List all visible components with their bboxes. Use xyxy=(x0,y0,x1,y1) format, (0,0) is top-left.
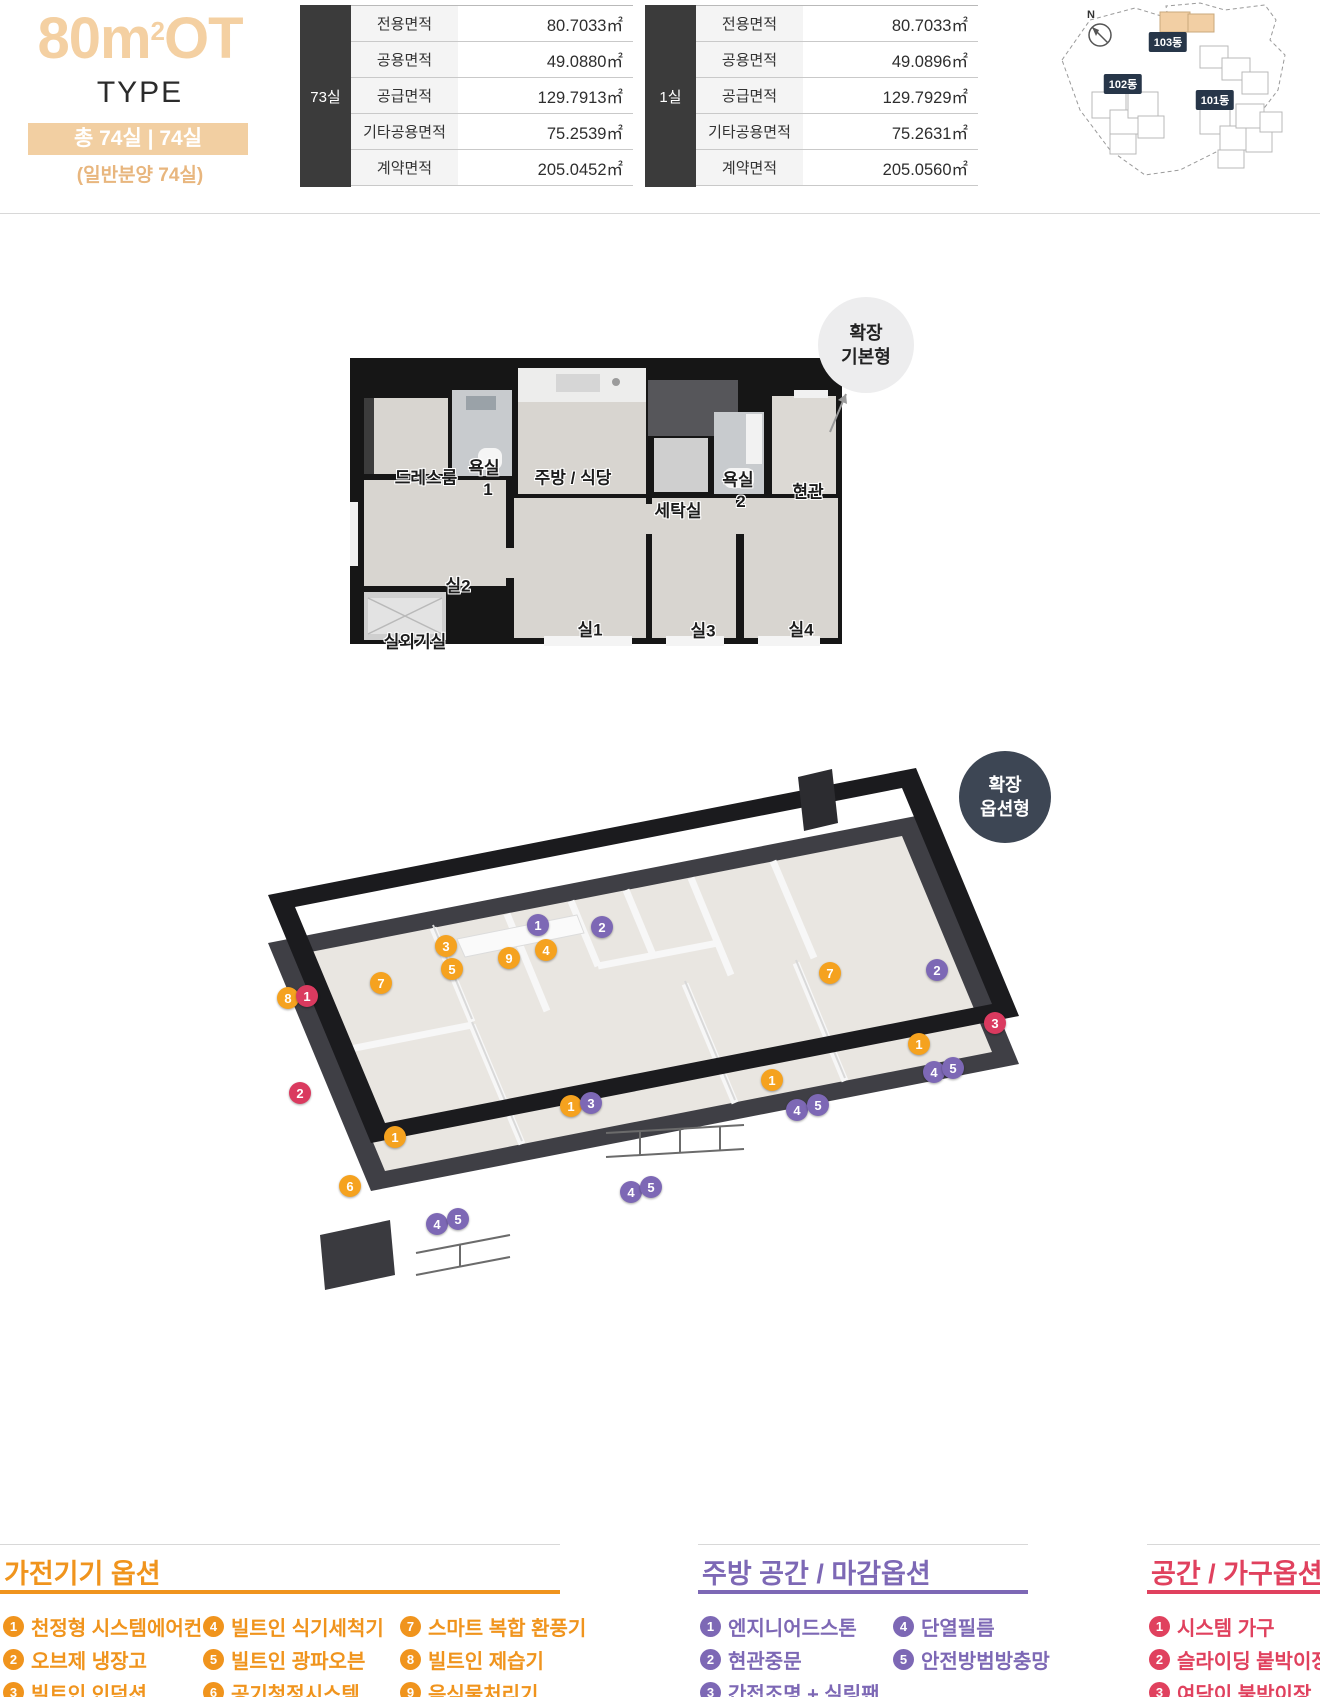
area-row-label: 공용면적 xyxy=(351,42,458,77)
expansion-option-badge: 확장 옵션형 xyxy=(959,751,1051,843)
legend-title: 공간 / 가구옵션 xyxy=(1151,1552,1320,1591)
legend-item-label: 안전방범방충망 xyxy=(921,1645,1050,1674)
area-row-label: 전용면적 xyxy=(351,6,458,41)
area-table-unit: 1실 xyxy=(645,5,696,187)
legend-item-label: 단열필름 xyxy=(921,1612,995,1641)
legend-item-label: 빌트인 인덕션 xyxy=(31,1678,147,1697)
type-label: TYPE xyxy=(18,76,262,110)
area-row-value: 49.0896㎡ xyxy=(803,42,978,77)
option-marker: 5 xyxy=(447,1208,469,1230)
legend-item-number: 2 xyxy=(1149,1649,1170,1670)
legend-item: 6공기청정시스템 xyxy=(203,1678,360,1697)
legend-item-number: 5 xyxy=(203,1649,224,1670)
option-marker: 3 xyxy=(435,935,457,957)
legend-item-number: 7 xyxy=(400,1616,421,1637)
legend-item: 4빌트인 식기세척기 xyxy=(203,1612,384,1641)
section-divider xyxy=(0,213,1320,214)
legend-item: 4단열필름 xyxy=(893,1612,995,1641)
option-marker: 1 xyxy=(761,1069,783,1091)
room-label: 실외기실 xyxy=(384,628,447,653)
legend-item-number: 4 xyxy=(203,1616,224,1637)
legend-item-number: 5 xyxy=(893,1649,914,1670)
area-table-unit: 73실 xyxy=(300,5,351,187)
area-row: 기타공용면적75.2631㎡ xyxy=(696,114,978,150)
page-title: 80m2OT xyxy=(18,10,262,68)
area-row-label: 계약면적 xyxy=(696,150,803,185)
legend-item-label: 빌트인 제습기 xyxy=(428,1645,544,1674)
room-label: 욕실 xyxy=(468,454,499,479)
room-label: 실2 xyxy=(445,572,470,597)
legend-item: 8빌트인 제습기 xyxy=(400,1645,544,1674)
room-label: 2 xyxy=(736,492,745,512)
legend-item-label: 시스템 가구 xyxy=(1177,1612,1275,1641)
area-row-value: 75.2631㎡ xyxy=(803,114,978,149)
legend-item-label: 엔지니어드스톤 xyxy=(728,1612,857,1641)
area-row: 전용면적80.7033㎡ xyxy=(696,6,978,42)
option-marker: 7 xyxy=(370,972,392,994)
legend-underline xyxy=(1147,1590,1320,1594)
option-marker: 9 xyxy=(498,947,520,969)
room-label: 1 xyxy=(483,480,492,500)
legend-item: 3빌트인 인덕션 xyxy=(3,1678,147,1697)
option-marker: 1 xyxy=(384,1126,406,1148)
area-row-value: 205.0452㎡ xyxy=(458,150,633,185)
area-row-label: 공급면적 xyxy=(696,78,803,113)
badge-line1: 확장 xyxy=(849,321,882,345)
title-superscript: 2 xyxy=(151,16,164,46)
area-table-body: 전용면적80.7033㎡공용면적49.0880㎡공급면적129.7913㎡기타공… xyxy=(351,5,633,187)
area-row: 기타공용면적75.2539㎡ xyxy=(351,114,633,150)
floor-plan-2d: 드레스룸욕실1주방 / 식당세탁실욕실2현관실2실1실3실4실외기실 xyxy=(348,352,845,650)
area-row-value: 129.7929㎡ xyxy=(803,78,978,113)
legend-title: 가전기기 옵션 xyxy=(4,1552,161,1591)
room-label: 현관 xyxy=(792,478,823,503)
legend-item: 3간접조명 + 실링팬 xyxy=(700,1678,880,1697)
legend-item-label: 천정형 시스템에어컨 xyxy=(31,1612,202,1641)
legend-item-label: 슬라이딩 붙박이장 xyxy=(1177,1645,1320,1674)
floor-plan-2d-drawing xyxy=(348,352,845,650)
site-map-drawing: N xyxy=(1050,0,1320,185)
legend-item: 2오브제 냉장고 xyxy=(3,1645,147,1674)
building-cluster-101 xyxy=(1200,104,1282,168)
legend-item: 1천정형 시스템에어컨 xyxy=(3,1612,202,1641)
area-row-value: 75.2539㎡ xyxy=(458,114,633,149)
legend-item: 2슬라이딩 붙박이장 xyxy=(1149,1645,1320,1674)
site-map: N 103동102동101동 xyxy=(1050,0,1320,185)
room-label: 주방 / 식당 xyxy=(535,464,612,489)
title-prefix: 80m xyxy=(37,6,150,71)
legend-item: 3여닫이 붙박이장 xyxy=(1149,1678,1311,1697)
room-label: 욕실 xyxy=(722,466,753,491)
legend-topline xyxy=(0,1544,560,1545)
legend-item: 1엔지니어드스톤 xyxy=(700,1612,857,1641)
area-row-label: 기타공용면적 xyxy=(351,114,458,149)
legend-title: 주방 공간 / 마감옵션 xyxy=(702,1552,931,1591)
area-row-value: 49.0880㎡ xyxy=(458,42,633,77)
legend-item-label: 스마트 복합 환풍기 xyxy=(428,1612,586,1641)
building-badge: 102동 xyxy=(1104,74,1142,94)
option-marker: 4 xyxy=(620,1181,642,1203)
area-row: 전용면적80.7033㎡ xyxy=(351,6,633,42)
option-marker: 1 xyxy=(527,914,549,936)
area-row-label: 기타공용면적 xyxy=(696,114,803,149)
area-row-label: 공급면적 xyxy=(351,78,458,113)
area-row-value: 80.7033㎡ xyxy=(803,6,978,41)
general-sale-note: (일반분양 74실) xyxy=(18,160,262,187)
option-marker: 4 xyxy=(426,1213,448,1235)
legend-item: 9음식물처리기 xyxy=(400,1678,538,1697)
room-label: 드레스룸 xyxy=(395,464,458,489)
legend-item: 2현관중문 xyxy=(700,1645,802,1674)
room-label: 실1 xyxy=(577,616,602,641)
area-row-label: 전용면적 xyxy=(696,6,803,41)
legend-item-label: 공기청정시스템 xyxy=(231,1678,360,1697)
compass-n-label: N xyxy=(1087,9,1095,21)
option-marker: 3 xyxy=(984,1012,1006,1034)
option-marker: 4 xyxy=(535,939,557,961)
building-cluster-102 xyxy=(1092,92,1164,154)
legend-item-number: 2 xyxy=(700,1649,721,1670)
option-marker: 5 xyxy=(441,958,463,980)
compass-icon: N xyxy=(1087,9,1111,46)
legend-item: 7스마트 복합 환풍기 xyxy=(400,1612,586,1641)
badge-line2: 옵션형 xyxy=(980,797,1030,821)
legend-item-label: 빌트인 광파오븐 xyxy=(231,1645,365,1674)
floor-plan-3d: 817359412216134545723145145 xyxy=(180,765,1050,1310)
option-marker: 2 xyxy=(591,916,613,938)
option-marker: 1 xyxy=(296,985,318,1007)
area-table-body: 전용면적80.7033㎡공용면적49.0896㎡공급면적129.7929㎡기타공… xyxy=(696,5,978,187)
legend-item-number: 1 xyxy=(700,1616,721,1637)
building-badge: 103동 xyxy=(1149,32,1187,52)
brochure-page: 80m2OT TYPE 총 74실 | 74실 (일반분양 74실) 73실 전… xyxy=(0,0,1320,1697)
legend-item-number: 6 xyxy=(203,1682,224,1697)
area-row: 계약면적205.0452㎡ xyxy=(351,150,633,186)
legend-item-label: 현관중문 xyxy=(728,1645,802,1674)
badge-arrow xyxy=(822,388,856,436)
area-row-value: 205.0560㎡ xyxy=(803,150,978,185)
legend-topline xyxy=(1147,1544,1320,1545)
option-marker: 5 xyxy=(942,1057,964,1079)
area-row: 공급면적129.7929㎡ xyxy=(696,78,978,114)
legend-item-number: 3 xyxy=(3,1682,24,1697)
area-row-value: 80.7033㎡ xyxy=(458,6,633,41)
area-row-value: 129.7913㎡ xyxy=(458,78,633,113)
option-marker: 1 xyxy=(560,1095,582,1117)
legend-underline xyxy=(698,1590,1028,1594)
option-marker: 2 xyxy=(289,1082,311,1104)
room-label: 세탁실 xyxy=(655,497,702,522)
legend-item-number: 2 xyxy=(3,1649,24,1670)
option-marker: 5 xyxy=(807,1094,829,1116)
room-label: 실4 xyxy=(788,616,813,641)
legend-item: 5안전방범방충망 xyxy=(893,1645,1050,1674)
title-suffix: OT xyxy=(164,6,243,71)
area-row-label: 공용면적 xyxy=(696,42,803,77)
option-marker: 3 xyxy=(580,1092,602,1114)
area-table-1: 1실 전용면적80.7033㎡공용면적49.0896㎡공급면적129.7929㎡… xyxy=(645,5,978,187)
area-row: 공용면적49.0896㎡ xyxy=(696,42,978,78)
area-row: 계약면적205.0560㎡ xyxy=(696,150,978,186)
legend-underline xyxy=(0,1590,560,1594)
expansion-basic-badge: 확장 기본형 xyxy=(818,297,914,393)
legend-item-label: 오브제 냉장고 xyxy=(31,1645,147,1674)
badge-line1: 확장 xyxy=(988,773,1021,797)
legend-item: 5빌트인 광파오븐 xyxy=(203,1645,365,1674)
area-table-73: 73실 전용면적80.7033㎡공용면적49.0880㎡공급면적129.7913… xyxy=(300,5,633,187)
legend-item-number: 1 xyxy=(1149,1616,1170,1637)
area-row: 공급면적129.7913㎡ xyxy=(351,78,633,114)
area-row: 공용면적49.0880㎡ xyxy=(351,42,633,78)
highlighted-building xyxy=(1160,12,1214,32)
unit-count-badge: 총 74실 | 74실 xyxy=(28,123,248,155)
legend-item-label: 간접조명 + 실링팬 xyxy=(728,1678,880,1697)
area-row-label: 계약면적 xyxy=(351,150,458,185)
option-marker: 5 xyxy=(640,1176,662,1198)
legend-item-number: 8 xyxy=(400,1649,421,1670)
legend-item-number: 4 xyxy=(893,1616,914,1637)
legend-item-number: 3 xyxy=(700,1682,721,1697)
building-badge: 101동 xyxy=(1196,90,1234,110)
option-marker: 7 xyxy=(819,962,841,984)
legend-item-number: 9 xyxy=(400,1682,421,1697)
legend-item-label: 음식물처리기 xyxy=(428,1678,538,1697)
badge-line2: 기본형 xyxy=(841,345,891,369)
legend-item-label: 빌트인 식기세척기 xyxy=(231,1612,384,1641)
room-label: 실3 xyxy=(690,617,715,642)
option-marker: 6 xyxy=(339,1175,361,1197)
building-cluster-103 xyxy=(1200,46,1268,94)
legend-item-number: 3 xyxy=(1149,1682,1170,1697)
legend-item: 1시스템 가구 xyxy=(1149,1612,1275,1641)
option-marker: 2 xyxy=(926,959,948,981)
option-marker: 1 xyxy=(908,1033,930,1055)
legend-topline xyxy=(698,1544,1028,1545)
legend-item-label: 여닫이 붙박이장 xyxy=(1177,1678,1311,1697)
option-marker: 4 xyxy=(786,1099,808,1121)
legend-item-number: 1 xyxy=(3,1616,24,1637)
